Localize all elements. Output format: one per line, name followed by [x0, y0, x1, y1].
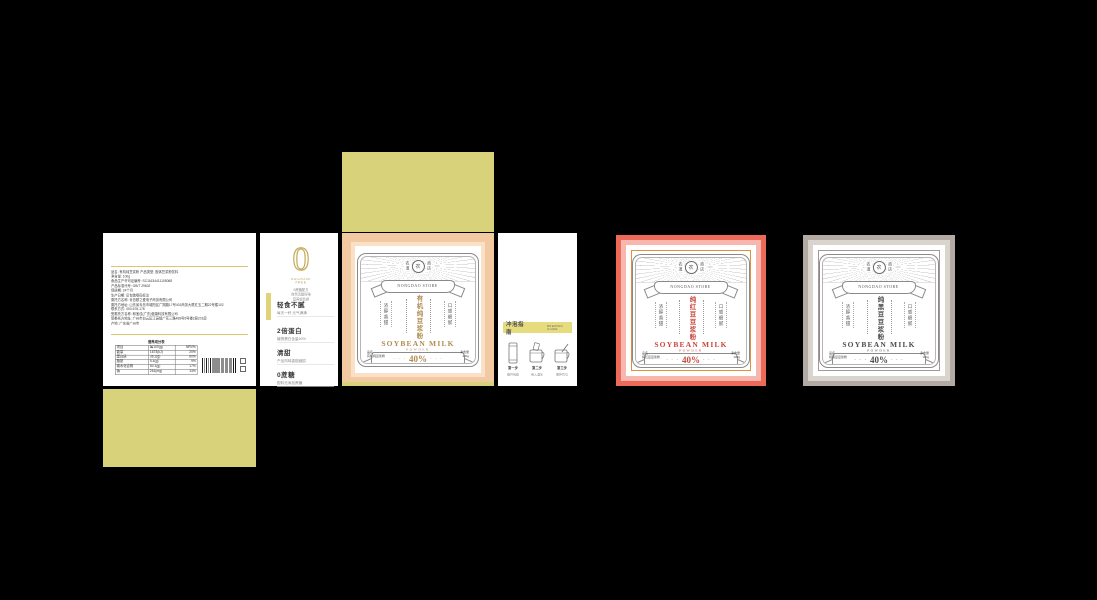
corner-value: 纯红豆豆浆粉 — [642, 356, 660, 360]
selling-point-title: 2倍蛋白 — [277, 325, 335, 335]
store-name: NONGDAO STORE — [671, 283, 711, 290]
ribbon-band: · · · 40% · · · — [371, 352, 465, 364]
gray-frame-light: 农道 农 商店 NONGDAO STORE 浓醇香甜 口感细腻 纯黑豆豆浆粉 S… — [808, 240, 950, 381]
selling-point-desc: 植物蛋白含量40% — [277, 336, 334, 343]
product-name-en: SOYBEAN MILK — [823, 340, 935, 349]
dots-decor: · · · — [393, 357, 406, 362]
left-tagline: 浓醇香甜 — [380, 301, 392, 328]
box-flap-top — [342, 152, 494, 232]
product-label-card: 农道 农 商店 NONGDAO STORE 浓醇香甜 口感细腻 纯黑豆豆浆粉 S… — [819, 254, 939, 368]
nutrition-title: 营养成分表 — [115, 339, 198, 344]
label-inner-border: 农道 农 商店 NONGDAO STORE 浓醇香甜 口感细腻 纯红豆豆浆粉 S… — [635, 257, 747, 365]
dotted-line — [891, 300, 892, 334]
brewing-guide-bar: 冲泡指南 BREWING GUIDE — [503, 322, 572, 333]
percent-value: 40% — [409, 355, 427, 364]
selling-point-desc: 每天一杯 元气满满 — [277, 310, 334, 317]
sucrose-free-label: SUCROSE FREE — [285, 278, 317, 285]
corner-value: 纯黑豆豆浆粉 — [829, 356, 847, 360]
sachet-icon — [506, 342, 520, 364]
dots-decor: · · · — [854, 358, 867, 363]
step-desc: 搅拌均匀 — [556, 372, 568, 377]
info-panel: 品名: 有机纯豆浆粉 产品类型: 固体豆浆粉饮料 净含量: 100g 食品生产许… — [103, 233, 256, 386]
nutrition-facts-table: 营养成分表 项目 每100(g) NRV% 能量 1673(kJ) 20% 蛋白… — [115, 339, 198, 375]
corner-value: 100g — [460, 355, 469, 359]
brewing-guide-panel: 冲泡指南 BREWING GUIDE 第一步 撕开包装 — [498, 233, 577, 386]
dotted-line — [703, 300, 704, 334]
selling-point-title: 0蔗糖 — [277, 369, 335, 379]
corner-text-right: 净含量 100g — [460, 351, 469, 359]
corner-text-right: 净含量 100g — [920, 352, 929, 360]
barcode-side-marks — [240, 358, 246, 372]
product-title-vertical: 纯黑豆豆浆粉 — [873, 296, 885, 341]
product-label-card: 农道 农 商店 NONGDAO STORE 浓醇香甜 口感细腻 纯红豆豆浆粉 S… — [632, 254, 750, 368]
product-name-en2: POWDER — [659, 349, 723, 352]
packaging-design-canvas: 品名: 有机纯豆浆粉 产品类型: 固体豆浆粉饮料 净含量: 100g 食品生产许… — [0, 0, 1097, 600]
mug-stir-icon — [552, 342, 572, 364]
dots-decor: · · · — [430, 357, 443, 362]
left-tagline: 浓醇香甜 — [842, 302, 854, 329]
divider-rule — [111, 334, 248, 335]
corner-value: 100g — [920, 356, 929, 360]
info-line: 产地: 广东省广州市 — [111, 322, 255, 327]
percent-value: 40% — [870, 356, 888, 365]
label-frame-white: 农道 农 商店 NONGDAO STORE 浓醇香甜 口感细腻 — [355, 246, 481, 373]
cell: 14% — [175, 370, 197, 375]
right-tagline: 口感细腻 — [715, 302, 727, 329]
selling-point: 清甜 产品风味香甜细腻 — [277, 347, 335, 369]
dotted-line — [406, 299, 407, 333]
product-title-vertical: 纯红豆豆浆粉 — [685, 296, 697, 341]
product-name-en: SOYBEAN MILK — [361, 339, 475, 348]
store-name: NONGDAO STORE — [398, 282, 438, 289]
red-label-panel: 农道 农 商店 NONGDAO STORE 浓醇香甜 口感细腻 纯红豆豆浆粉 S… — [616, 235, 766, 386]
red-frame-orange-line: 农道 农 商店 NONGDAO STORE 浓醇香甜 口感细腻 纯红豆豆浆粉 S… — [631, 250, 751, 371]
seal-glyph: 农 — [688, 264, 693, 271]
store-banner: NONGDAO STORE — [361, 280, 475, 298]
percent-value: 40% — [682, 356, 700, 365]
corner-text-left: 品名 纯红豆豆浆粉 — [642, 352, 660, 360]
box-flap-bottom — [103, 389, 256, 467]
regulatory-text-block: 品名: 有机纯豆浆粉 产品类型: 固体豆浆粉饮料 净含量: 100g 食品生产许… — [111, 270, 255, 326]
gray-frame-white: 农道 农 商店 NONGDAO STORE 浓醇香甜 口感细腻 纯黑豆豆浆粉 S… — [813, 245, 945, 376]
cell: 261(mg) — [149, 370, 176, 375]
brewing-guide-title: 冲泡指南 — [506, 320, 525, 336]
red-frame-pink: 农道 农 商店 NONGDAO STORE 浓醇香甜 口感细腻 纯红豆豆浆粉 S… — [621, 240, 761, 381]
label-inner-border: 农道 农 商店 NONGDAO STORE 浓醇香甜 口感细腻 纯黑豆豆浆粉 S… — [822, 257, 936, 365]
store-name: NONGDAO STORE — [859, 283, 899, 290]
corner-value: 有机纯豆浆粉 — [367, 355, 385, 359]
red-frame-white: 农道 农 商店 NONGDAO STORE 浓醇香甜 口感细腻 纯红豆豆浆粉 S… — [626, 245, 756, 376]
selling-point-title: 清甜 — [277, 347, 335, 357]
seal-glyph: 农 — [415, 263, 420, 270]
product-name-en2: POWDER — [385, 348, 451, 351]
seal-right-text: 商店 — [426, 261, 433, 271]
seal-circle-icon: 农 — [685, 261, 698, 274]
banner-band: NONGDAO STORE — [654, 281, 728, 294]
seal-right-text: 商店 — [699, 262, 706, 272]
product-title-vertical: 有机纯豆浆粉 — [412, 295, 424, 340]
brand-seal: 农道 农 商店 — [404, 260, 432, 273]
dots-decor: · · · — [703, 358, 716, 363]
step-label: 第二步 — [531, 365, 544, 370]
yellow-accent-bar — [266, 293, 271, 320]
brand-seal: 农道 农 商店 — [677, 261, 705, 274]
selling-point: 轻食不腻 每天一杯 元气满满 — [277, 299, 335, 321]
dotted-line — [679, 300, 680, 334]
corner-value: 100g — [731, 356, 740, 360]
brew-step: 第一步 撕开包装 — [501, 342, 525, 381]
seal-left-text: 农道 — [865, 262, 872, 272]
step-desc: 撕开包装 — [507, 372, 519, 377]
selling-point: 0蔗糖 配料无添加蔗糖 — [277, 369, 335, 391]
right-tagline: 口感细腻 — [904, 302, 916, 329]
banner-band: NONGDAO STORE — [381, 280, 455, 293]
brew-step: 第三步 搅拌均匀 — [550, 342, 574, 381]
selling-point-desc: 配料无添加蔗糖 — [277, 380, 334, 387]
dots-decor: · · · — [666, 358, 679, 363]
zero-numeral: 0 — [272, 243, 330, 277]
mug-pour-icon — [527, 342, 547, 364]
seal-circle-icon: 农 — [873, 261, 886, 274]
dotted-line — [867, 300, 868, 334]
label-inner-border: 农道 农 商店 NONGDAO STORE 浓醇香甜 口感细腻 — [360, 256, 476, 364]
banner-band: NONGDAO STORE — [842, 281, 916, 294]
divider-rule — [111, 266, 248, 267]
seal-circle-icon: 农 — [412, 260, 425, 273]
dots-decor: · · · — [891, 358, 904, 363]
store-banner: NONGDAO STORE — [823, 281, 935, 299]
seal-glyph: 农 — [876, 264, 881, 271]
brand-seal: 农道 农 商店 — [865, 261, 893, 274]
seal-right-text: 商店 — [887, 262, 894, 272]
dotted-line — [430, 299, 431, 333]
black-label-panel: 农道 农 商店 NONGDAO STORE 浓醇香甜 口感细腻 纯黑豆豆浆粉 S… — [803, 235, 955, 386]
store-banner: NONGDAO STORE — [636, 281, 746, 299]
product-name-en2: POWDER — [847, 349, 912, 352]
table-row: 钠 261(mg) 14% — [115, 370, 197, 375]
seal-left-text: 农道 — [677, 262, 684, 272]
corner-text-left: 品名 有机纯豆浆粉 — [367, 351, 385, 359]
gray-frame-line: 农道 农 商店 NONGDAO STORE 浓醇香甜 口感细腻 纯黑豆豆浆粉 S… — [818, 250, 940, 371]
barcode — [202, 358, 236, 373]
main-label-panel: 农道 农 商店 NONGDAO STORE 浓醇香甜 口感细腻 — [342, 233, 494, 386]
selling-point-title: 轻食不腻 — [277, 299, 335, 309]
step-desc: 倒入温水 — [531, 372, 543, 377]
glue-strip — [342, 382, 494, 386]
seal-left-text: 农道 — [404, 261, 411, 271]
label-frame-inner: 农道 农 商店 NONGDAO STORE 浓醇香甜 口感细腻 — [351, 242, 485, 377]
product-label-card: 农道 农 商店 NONGDAO STORE 浓醇香甜 口感细腻 — [357, 253, 479, 367]
product-name-en: SOYBEAN MILK — [636, 340, 746, 349]
selling-point: 2倍蛋白 植物蛋白含量40% — [277, 325, 335, 347]
left-tagline: 浓醇香甜 — [655, 302, 667, 329]
cell: 钠 — [115, 370, 148, 375]
brewing-guide-en: BREWING GUIDE — [547, 325, 569, 331]
selling-point-desc: 产品风味香甜细腻 — [277, 358, 334, 365]
corner-text-left: 品名 纯黑豆豆浆粉 — [829, 352, 847, 360]
brew-step: 第二步 倒入温水 — [525, 342, 549, 381]
step-label: 第一步 — [507, 365, 520, 370]
corner-text-right: 净含量 100g — [731, 352, 740, 360]
selling-points-panel: 0 SUCROSE FREE 0蔗糖配方 自然清甜好味 营养轻负担 轻食不腻 每… — [260, 233, 338, 386]
step-label: 第三步 — [555, 365, 568, 370]
right-tagline: 口感细腻 — [444, 301, 456, 328]
brewing-steps: 第一步 撕开包装 第二步 倒入温水 — [501, 342, 574, 381]
